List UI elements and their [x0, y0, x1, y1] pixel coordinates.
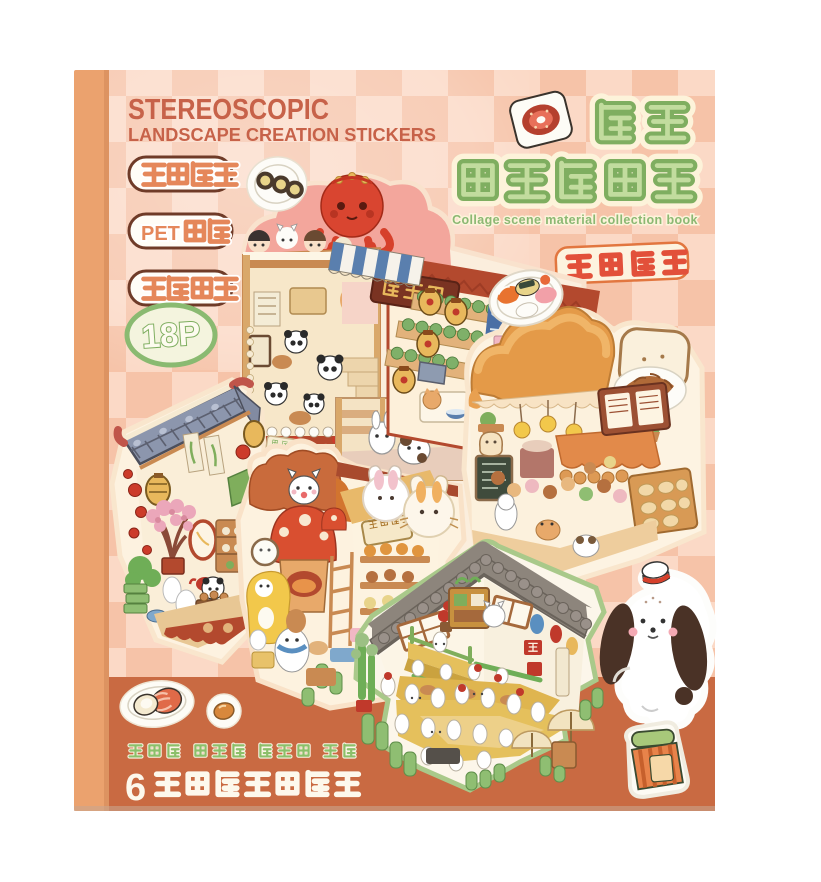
svg-text:STEREOSCOPIC: STEREOSCOPIC [128, 94, 329, 126]
svg-text:PET: PET [141, 223, 180, 245]
svg-text:LANDSCAPE CREATION STICKERS: LANDSCAPE CREATION STICKERS [128, 125, 436, 145]
svg-text:18P: 18P [140, 314, 201, 355]
svg-text:Collage scene material collect: Collage scene material collection book [452, 213, 698, 227]
svg-text:6: 6 [125, 767, 146, 809]
